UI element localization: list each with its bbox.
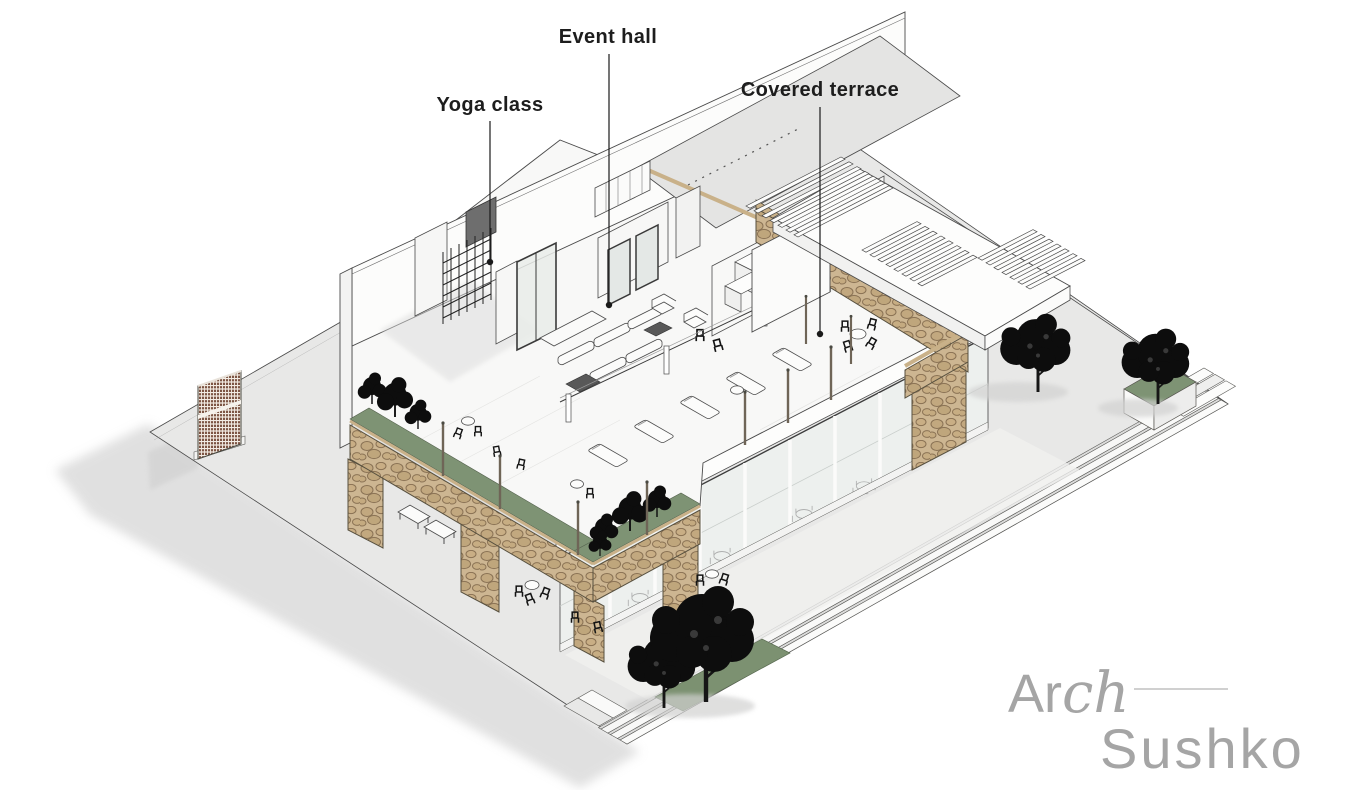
lattice-screen bbox=[194, 371, 245, 460]
label-covered-terrace: Covered terrace bbox=[741, 79, 899, 101]
glass-door-2 bbox=[636, 225, 658, 290]
architecture-drawing: Yoga class Event hall Covered terrace Ar… bbox=[0, 0, 1351, 790]
glass-door-1 bbox=[608, 239, 630, 305]
label-yoga-class: Yoga class bbox=[436, 94, 543, 116]
leader-dot bbox=[817, 331, 823, 337]
studio-logo: Arch Sushko bbox=[1008, 661, 1305, 780]
leader-dot bbox=[487, 259, 493, 265]
axonometric-diagram: Yoga class Event hall Covered terrace Ar… bbox=[0, 0, 1351, 790]
logo-sushko: Sushko bbox=[1100, 717, 1305, 780]
leader-dot bbox=[606, 302, 612, 308]
label-event-hall: Event hall bbox=[559, 26, 657, 48]
